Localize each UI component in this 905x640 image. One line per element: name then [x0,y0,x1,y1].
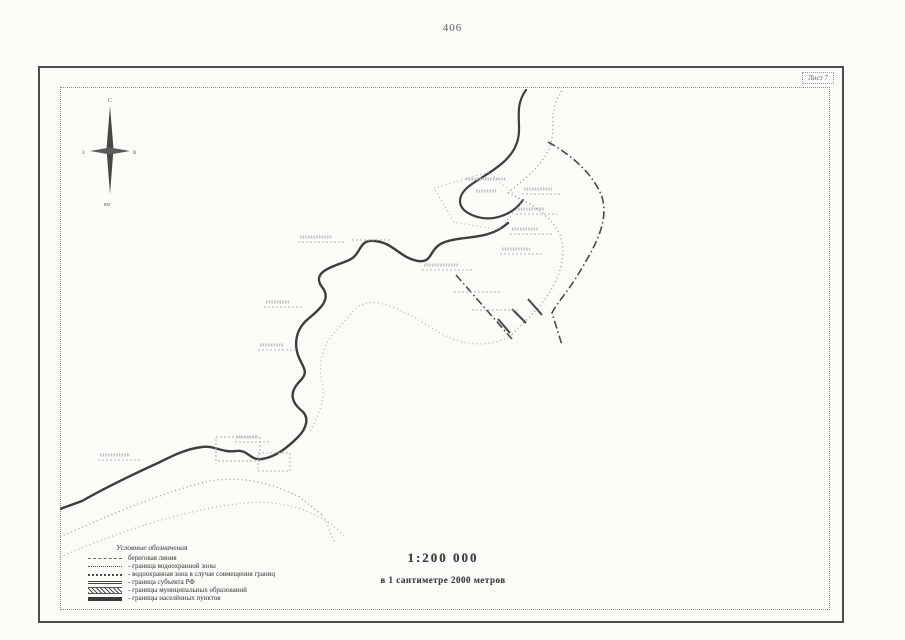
scale-caption: в 1 сантиметре 2000 метров [333,575,553,585]
legend-item-label: - границы населённых пунктов [128,594,221,603]
legend-swatch-wpz-combined [88,574,122,576]
legend-swatch-municipal [88,587,122,594]
sheet-corner-label: Лист 7 [802,72,834,84]
admin-boundary-branch [456,275,512,339]
leader-lines [98,194,562,460]
scale-ratio: 1:200 000 [333,550,553,566]
page-number: 406 [0,22,905,34]
river-line-upper [460,90,526,218]
legend-swatch-wpz-boundary [88,566,122,567]
water-zone-line-lower [60,479,322,537]
legend: Условные обозначения береговая линия - г… [88,544,358,603]
illegible-label-marks [100,179,552,455]
legend-swatch-coastline [88,558,122,559]
admin-boundary-line [548,142,604,345]
map-sheet: Лист 7 С З В юг [38,66,844,623]
scale-block: 1:200 000 в 1 сантиметре 2000 метров [333,550,553,585]
water-zone-line-middle [310,302,512,431]
legend-swatch-rf-subject [88,581,122,584]
map-canvas [60,87,830,610]
legend-swatch-settlement [88,597,122,601]
water-zone-line-lower-tail [322,515,336,543]
boundary-tick-marks [498,299,542,333]
legend-title: Условные обозначения [116,544,358,553]
legend-item: - границы населённых пунктов [88,595,358,603]
